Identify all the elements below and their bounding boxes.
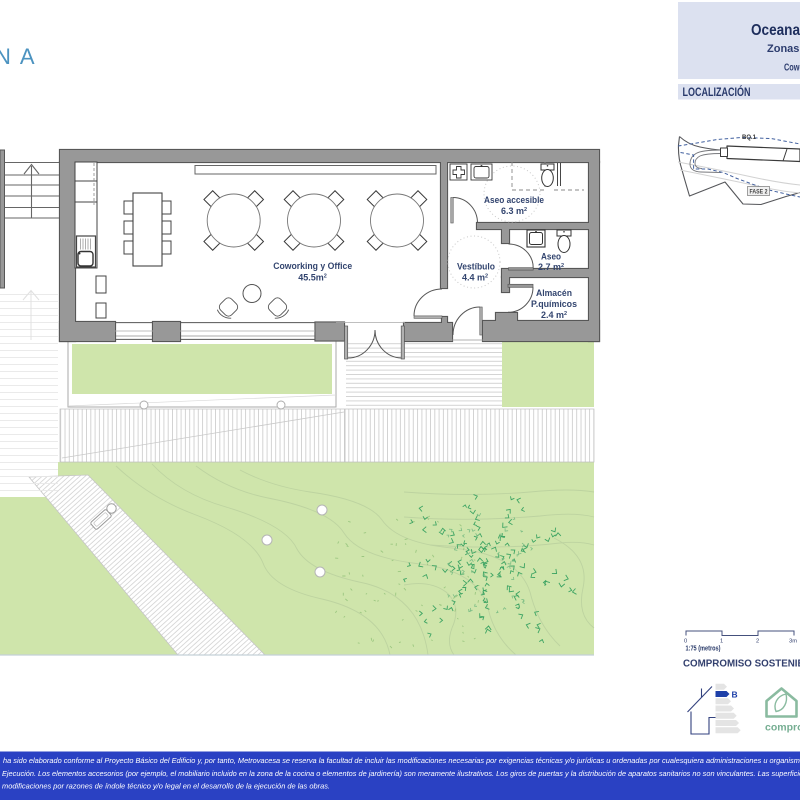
svg-text:Coworking y Office: Coworking y Office xyxy=(273,261,352,272)
svg-text:NA: NA xyxy=(0,44,44,69)
svg-text:3m: 3m xyxy=(789,639,797,645)
svg-text:1: 1 xyxy=(720,639,723,645)
svg-text:Coworking: Coworking xyxy=(784,63,800,74)
svg-text:P.químicos: P.químicos xyxy=(531,299,577,310)
svg-text:FASE 2: FASE 2 xyxy=(750,189,768,196)
svg-text:1:75 (metros): 1:75 (metros) xyxy=(686,646,721,653)
svg-text:Ejecución. Los elementos acces: Ejecución. Los elementos accesorios (por… xyxy=(2,769,800,778)
svg-text:Almacén: Almacén xyxy=(536,288,572,299)
svg-text:Oceana: Oceana xyxy=(751,22,800,39)
svg-text:modificaciones por razones de: modificaciones por razones de índole téc… xyxy=(2,782,330,791)
svg-text:2.7 m2: 2.7 m2 xyxy=(538,262,564,272)
svg-text:6.3 m2: 6.3 m2 xyxy=(501,206,527,216)
svg-text:45.5m2: 45.5m2 xyxy=(298,273,327,283)
svg-text:2: 2 xyxy=(756,639,759,645)
svg-text:Vestíbulo: Vestíbulo xyxy=(457,262,495,273)
svg-text:4.4 m2: 4.4 m2 xyxy=(462,273,488,283)
svg-text:B: B xyxy=(732,690,738,700)
svg-text:LOCALIZACIÓN: LOCALIZACIÓN xyxy=(683,84,751,99)
svg-text:Zonas Comunes: Zonas Comunes xyxy=(767,43,800,55)
svg-text:0: 0 xyxy=(684,639,687,645)
svg-text:COMPROMISO SOSTENIBLE: COMPROMISO SOSTENIBLE xyxy=(683,659,800,670)
svg-text:BQ.1: BQ.1 xyxy=(742,135,757,141)
svg-text:2.4 m2: 2.4 m2 xyxy=(541,310,567,320)
svg-text:ha sido elaborado conforme al: ha sido elaborado conforme al Proyecto B… xyxy=(3,756,800,765)
svg-text:compromiso: compromiso xyxy=(765,722,800,734)
svg-text:Aseo accesible: Aseo accesible xyxy=(484,195,544,206)
svg-text:Aseo: Aseo xyxy=(541,252,561,263)
